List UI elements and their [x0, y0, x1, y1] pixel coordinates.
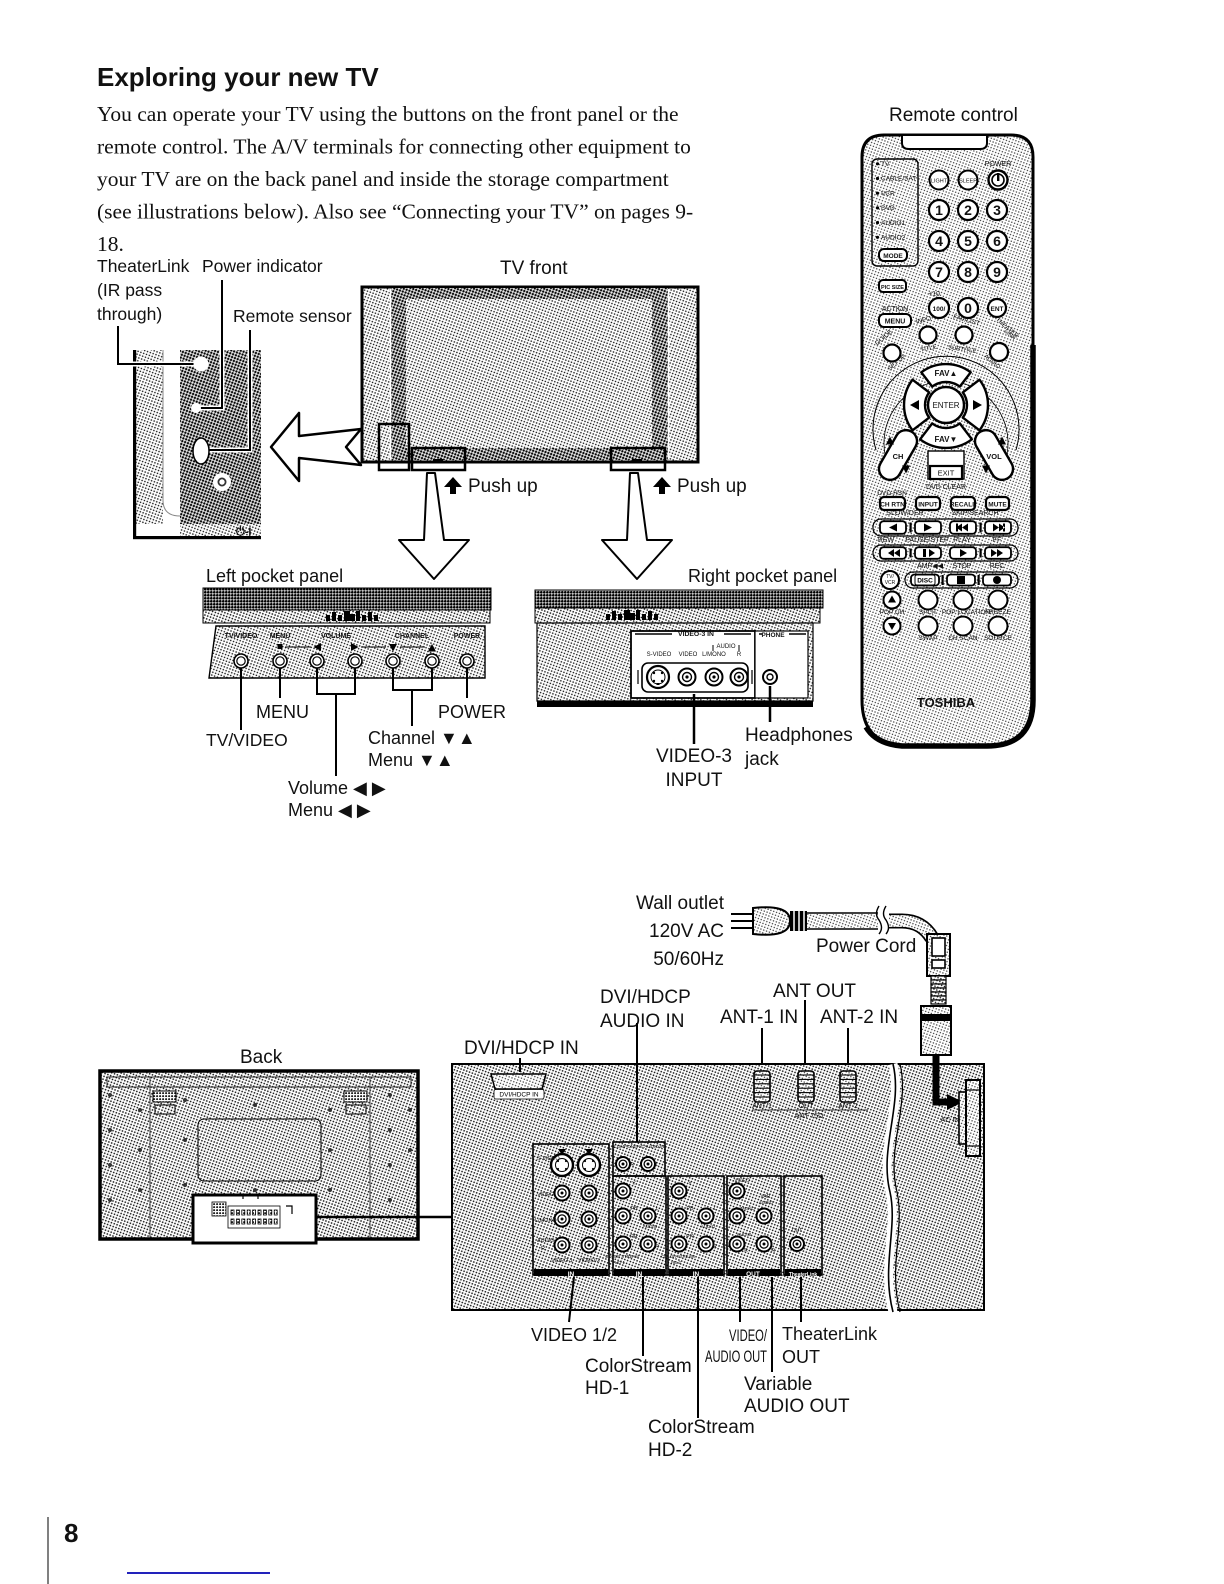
svg-text:PR: PR [630, 1234, 638, 1240]
svg-text:5: 5 [964, 233, 972, 249]
svg-text:L: L [714, 1206, 717, 1212]
svg-text:DVI/HDCP IN: DVI/HDCP IN [464, 1038, 579, 1059]
svg-text:PIC SIZE: PIC SIZE [881, 285, 904, 291]
svg-text:CABLE/SAT: CABLE/SAT [881, 176, 916, 183]
svg-text:Wall outlet: Wall outlet [636, 893, 725, 914]
svg-text:ANT-2: ANT-2 [838, 1103, 858, 1110]
svg-text:HD-1: HD-1 [615, 1260, 625, 1265]
svg-text:VIDEO/: VIDEO/ [729, 1326, 767, 1345]
svg-text:through): through) [97, 304, 162, 324]
svg-text:0: 0 [964, 300, 972, 316]
svg-text:PB: PB [630, 1206, 638, 1212]
svg-text:IN: IN [636, 1271, 643, 1278]
svg-text:R: R [737, 652, 742, 658]
svg-text:L/MONO: L/MONO [737, 1206, 756, 1211]
svg-text:ANT OUT: ANT OUT [773, 981, 856, 1002]
svg-text:100/: 100/ [933, 306, 946, 313]
svg-text:EXIT: EXIT [938, 469, 955, 478]
svg-text:ANT 75Ω: ANT 75Ω [795, 1113, 824, 1120]
svg-text:ANT-2 IN: ANT-2 IN [820, 1007, 898, 1028]
svg-text:VIDEO-3 IN: VIDEO-3 IN [678, 631, 714, 638]
svg-text:(IR pass: (IR pass [97, 280, 162, 300]
svg-text:AUDIO1: AUDIO1 [881, 220, 906, 227]
svg-text:TheaterLink: TheaterLink [97, 256, 190, 276]
svg-text:COLOR STREAM: COLOR STREAM [605, 1254, 639, 1259]
svg-text:4: 4 [935, 233, 943, 249]
svg-text:OUT: OUT [799, 1103, 815, 1110]
svg-text:MENU: MENU [270, 633, 291, 640]
svg-text:VIDEO-1: VIDEO-1 [551, 1258, 573, 1264]
svg-text:Left pocket panel: Left pocket panel [206, 566, 343, 586]
svg-text:INPUT: INPUT [666, 770, 723, 791]
svg-text:Power Cord: Power Cord [816, 936, 916, 957]
svg-text:DVI/HDCP: DVI/HDCP [600, 987, 691, 1008]
svg-text:VIDEO: VIDEO [537, 1192, 555, 1198]
svg-text:DVI/HDCP IN: DVI/HDCP IN [499, 1092, 539, 1099]
svg-text:ColorStream: ColorStream [648, 1417, 755, 1438]
svg-text:SKIP/SEARCH: SKIP/SEARCH [951, 510, 998, 517]
svg-text:OUT: OUT [792, 1228, 803, 1234]
svg-text:Volume ◀ ▶: Volume ◀ ▶ [288, 778, 386, 798]
svg-text:ColorStream: ColorStream [585, 1356, 692, 1377]
svg-text:Push up: Push up [677, 476, 747, 497]
svg-text:POP CH: POP CH [880, 609, 905, 616]
svg-text:VOL: VOL [986, 452, 1002, 461]
svg-text:VCR: VCR [881, 190, 895, 197]
svg-text:TV/VIDEO: TV/VIDEO [225, 633, 258, 640]
svg-text:3: 3 [993, 202, 1001, 218]
svg-text:VIDEO: VIDEO [734, 1178, 750, 1184]
svg-text:MUTE: MUTE [988, 502, 1007, 509]
svg-text:CH SCAN: CH SCAN [948, 635, 978, 642]
svg-text:MENU: MENU [885, 319, 906, 326]
svg-text:Menu ▼▲: Menu ▼▲ [368, 750, 454, 770]
svg-text:MODE: MODE [883, 253, 903, 260]
svg-text:Push up: Push up [468, 476, 538, 497]
svg-text:AC IN: AC IN [941, 1117, 960, 1124]
svg-text:VIDEO: VIDEO [679, 652, 698, 658]
svg-text:TOSHIBA: TOSHIBA [917, 695, 976, 710]
svg-text:Channel ▼▲: Channel ▼▲ [368, 728, 476, 748]
svg-text:7: 7 [935, 264, 943, 280]
svg-text:Power indicator: Power indicator [202, 256, 323, 276]
svg-text:AUDIO: AUDIO [759, 1200, 774, 1205]
svg-text:Y: Y [688, 1181, 692, 1187]
svg-text:R: R [744, 1248, 748, 1254]
svg-text:CH RTN: CH RTN [880, 502, 905, 509]
svg-text:ANT-1: ANT-1 [752, 1103, 772, 1110]
svg-text:SLOW/DER: SLOW/DER [886, 510, 923, 517]
svg-text:FAV▼: FAV▼ [935, 435, 958, 444]
svg-text:TV: TV [881, 161, 890, 168]
svg-text:Back: Back [240, 1047, 283, 1068]
svg-text:Remote sensor: Remote sensor [233, 306, 352, 326]
svg-text:AUDIO: AUDIO [737, 1232, 752, 1237]
svg-text:POWER: POWER [438, 702, 506, 722]
svg-text:PB: PB [686, 1206, 694, 1212]
svg-text:COLOR STREAM: COLOR STREAM [661, 1254, 695, 1259]
svg-text:VIDEO-3: VIDEO-3 [656, 746, 732, 767]
svg-text:Exploring your new TV: Exploring your new TV [97, 62, 379, 92]
svg-text:AUDIO IN: AUDIO IN [600, 1011, 684, 1032]
svg-text:120V AC: 120V AC [649, 921, 724, 942]
svg-text:HD-2: HD-2 [671, 1260, 681, 1265]
svg-text:COMPONENT AUDIO IN: COMPONENT AUDIO IN [613, 1144, 664, 1149]
svg-text:RECALL: RECALL [950, 502, 976, 509]
svg-text:R: R [771, 1248, 775, 1254]
svg-text:SLEEP: SLEEP [959, 179, 977, 185]
svg-text:CH: CH [893, 452, 904, 461]
svg-text:AUDIO OUT: AUDIO OUT [744, 1396, 850, 1417]
svg-text:HD-1: HD-1 [585, 1378, 629, 1399]
svg-text:HD-2: HD-2 [648, 1440, 692, 1461]
svg-text:AUDIO OUT: AUDIO OUT [705, 1347, 767, 1366]
svg-text:AUDIO2: AUDIO2 [881, 235, 906, 242]
svg-text:REW: REW [878, 537, 895, 544]
svg-text:SOURCE: SOURCE [984, 635, 1012, 642]
svg-text:(see illustrations below). Als: (see illustrations below). Also see “Con… [97, 200, 693, 224]
svg-text:DISC: DISC [917, 578, 933, 585]
svg-text:AMP◀◀: AMP◀◀ [917, 563, 944, 570]
svg-text:AUDIO: AUDIO [643, 1224, 658, 1229]
svg-text:IN: IN [693, 1271, 700, 1278]
svg-text:remote control. The A/V termin: remote control. The A/V terminals for co… [97, 135, 691, 159]
svg-text:L/MONO: L/MONO [702, 652, 726, 658]
svg-text:2: 2 [964, 202, 972, 218]
svg-text:ACTION: ACTION [882, 306, 908, 313]
svg-text:SPLIT: SPLIT [919, 609, 937, 616]
svg-text:INPUT: INPUT [918, 502, 938, 509]
svg-text:L: L [656, 1162, 659, 1168]
svg-text:6: 6 [993, 233, 1001, 249]
svg-text:Right pocket panel: Right pocket panel [688, 566, 837, 586]
svg-text:VCR: VCR [885, 580, 896, 586]
svg-text:PAUSE/STEP: PAUSE/STEP [905, 537, 949, 544]
svg-text:ENTER: ENTER [932, 401, 959, 410]
svg-text:⏻-I: ⏻-I [236, 525, 251, 538]
svg-text:1: 1 [935, 202, 943, 218]
svg-text:L: L [656, 1206, 659, 1212]
svg-text:LIGHT: LIGHT [931, 179, 948, 185]
svg-text:S-VIDEO: S-VIDEO [647, 652, 672, 658]
svg-text:OUT: OUT [746, 1271, 760, 1278]
svg-text:Headphones: Headphones [745, 725, 853, 746]
svg-text:your TV are on the back panel: your TV are on the back panel and inside… [97, 167, 669, 191]
svg-text:POWER: POWER [454, 633, 480, 640]
svg-text:R: R [630, 1162, 634, 1168]
svg-text:PLAY: PLAY [953, 537, 971, 544]
svg-text:TV front: TV front [500, 258, 568, 279]
svg-text:TheaterLink: TheaterLink [782, 1324, 878, 1344]
svg-text:PR: PR [686, 1234, 694, 1240]
svg-text:POP LOCATION: POP LOCATION [942, 609, 990, 616]
svg-text:R: R [541, 1246, 545, 1252]
svg-text:Variable: Variable [744, 1374, 812, 1395]
svg-text:Remote control: Remote control [889, 105, 1018, 126]
svg-text:DVD: DVD [881, 205, 895, 212]
svg-text:VIDEO-2: VIDEO-2 [578, 1258, 600, 1264]
svg-text:VOLUME: VOLUME [321, 633, 351, 640]
svg-text:You can operate your TV using: You can operate your TV using the button… [97, 102, 679, 126]
svg-text:L/MONO: L/MONO [535, 1218, 557, 1224]
svg-text:PHONE: PHONE [761, 632, 785, 639]
svg-text:ANT-1 IN: ANT-1 IN [720, 1007, 798, 1028]
svg-text:AUDIO: AUDIO [716, 644, 735, 650]
svg-text:MENU: MENU [256, 702, 309, 722]
svg-text:FF: FF [993, 537, 1002, 544]
svg-text:DVD CLEAR: DVD CLEAR [926, 484, 966, 491]
svg-text:R: R [655, 1244, 659, 1250]
svg-text:jack: jack [744, 749, 779, 770]
svg-text:8: 8 [964, 264, 972, 280]
svg-text:9: 9 [993, 264, 1001, 280]
svg-text:TV/VIDEO: TV/VIDEO [206, 730, 288, 750]
svg-text:AUDIO: AUDIO [537, 1238, 555, 1244]
svg-text:CHANNEL: CHANNEL [395, 633, 430, 640]
svg-text:50/60Hz: 50/60Hz [653, 949, 724, 970]
svg-text:ENT: ENT [991, 306, 1004, 313]
svg-text:Menu ◀ ▶: Menu ◀ ▶ [288, 800, 371, 820]
svg-text:REC: REC [990, 563, 1005, 570]
svg-text:POWER: POWER [985, 161, 1011, 168]
svg-text:8: 8 [64, 1518, 78, 1548]
svg-text:AUDIO: AUDIO [701, 1224, 716, 1229]
svg-text:TheaterLink: TheaterLink [789, 1272, 818, 1278]
svg-text:SWAP: SWAP [919, 635, 938, 642]
svg-text:OUT: OUT [782, 1347, 820, 1367]
svg-text:S-VIDEO: S-VIDEO [537, 1156, 560, 1162]
svg-text:VIDEO 1/2: VIDEO 1/2 [531, 1325, 617, 1345]
svg-text:R: R [713, 1244, 717, 1250]
svg-text:STOP: STOP [953, 563, 972, 570]
svg-text:FREEZE: FREEZE [985, 609, 1011, 616]
svg-text:Y: Y [632, 1181, 636, 1187]
svg-text:18.: 18. [97, 232, 124, 256]
svg-text:FAV▲: FAV▲ [935, 369, 958, 378]
